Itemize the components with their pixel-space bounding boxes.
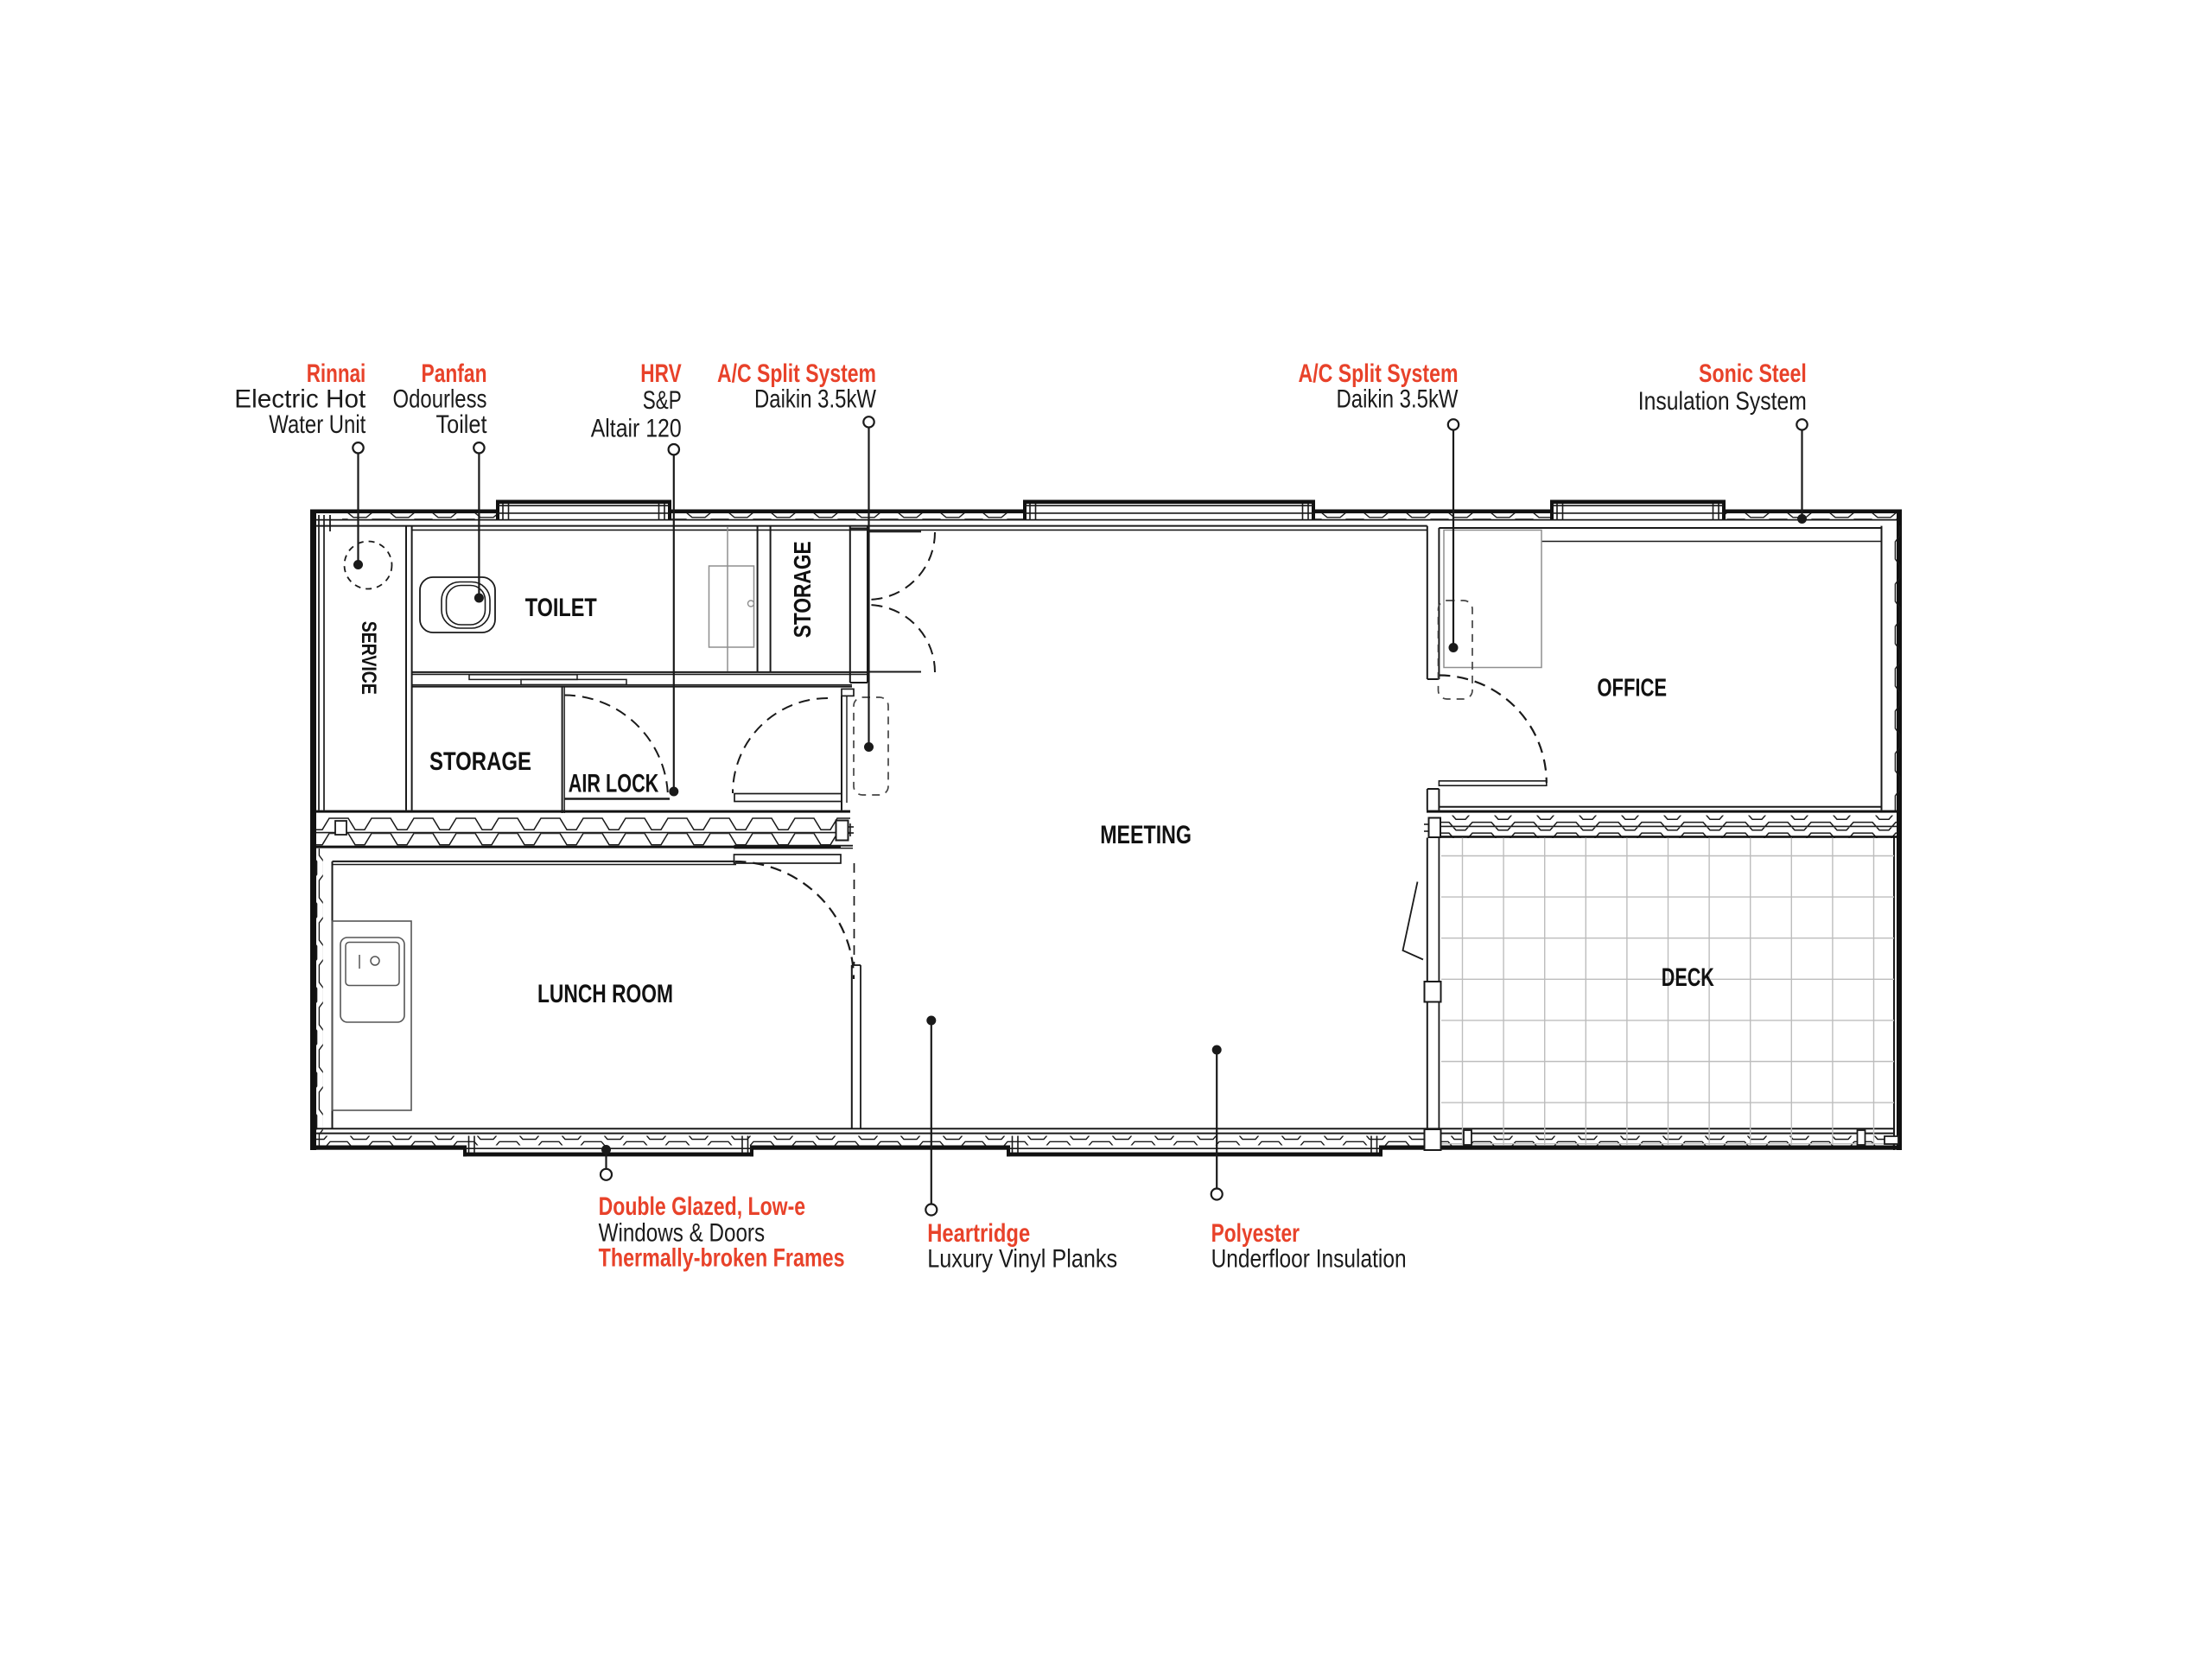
svg-text:Heartridge: Heartridge	[927, 1219, 1030, 1248]
svg-text:Underfloor Insulation: Underfloor Insulation	[1211, 1245, 1407, 1274]
svg-text:STORAGE: STORAGE	[789, 541, 816, 638]
svg-text:Electric Hot: Electric Hot	[234, 385, 366, 414]
svg-text:AIR LOCK: AIR LOCK	[569, 770, 659, 798]
svg-text:Panfan: Panfan	[422, 359, 487, 388]
svg-text:OFFICE: OFFICE	[1597, 675, 1667, 702]
svg-text:Thermally-broken Frames: Thermally-broken Frames	[599, 1244, 845, 1273]
svg-text:Insulation System: Insulation System	[1638, 387, 1807, 416]
svg-text:A/C Split System: A/C Split System	[717, 359, 876, 388]
svg-text:Toilet: Toilet	[436, 410, 488, 439]
svg-text:DECK: DECK	[1662, 963, 1714, 992]
svg-text:Daikin 3.5kW: Daikin 3.5kW	[754, 385, 877, 414]
svg-text:STORAGE: STORAGE	[429, 747, 531, 776]
svg-text:Daikin 3.5kW: Daikin 3.5kW	[1337, 385, 1459, 414]
svg-text:Rinnai: Rinnai	[307, 359, 366, 388]
svg-text:SERVICE: SERVICE	[357, 621, 380, 695]
svg-text:Odourless: Odourless	[393, 385, 487, 414]
svg-text:Double Glazed, Low-e: Double Glazed, Low-e	[599, 1192, 806, 1221]
svg-text:A/C Split System: A/C Split System	[1299, 359, 1459, 388]
svg-text:HRV: HRV	[640, 359, 681, 388]
svg-text:TOILET: TOILET	[525, 594, 597, 622]
svg-text:Polyester: Polyester	[1211, 1219, 1300, 1248]
svg-text:Altair 120: Altair 120	[591, 415, 682, 443]
svg-text:MEETING: MEETING	[1100, 821, 1192, 849]
svg-text:Sonic Steel: Sonic Steel	[1699, 359, 1807, 388]
svg-text:Luxury Vinyl Planks: Luxury Vinyl Planks	[927, 1245, 1117, 1274]
svg-text:LUNCH ROOM: LUNCH ROOM	[537, 980, 673, 1008]
svg-text:S&P: S&P	[643, 386, 682, 415]
svg-text:Water Unit: Water Unit	[269, 410, 366, 439]
